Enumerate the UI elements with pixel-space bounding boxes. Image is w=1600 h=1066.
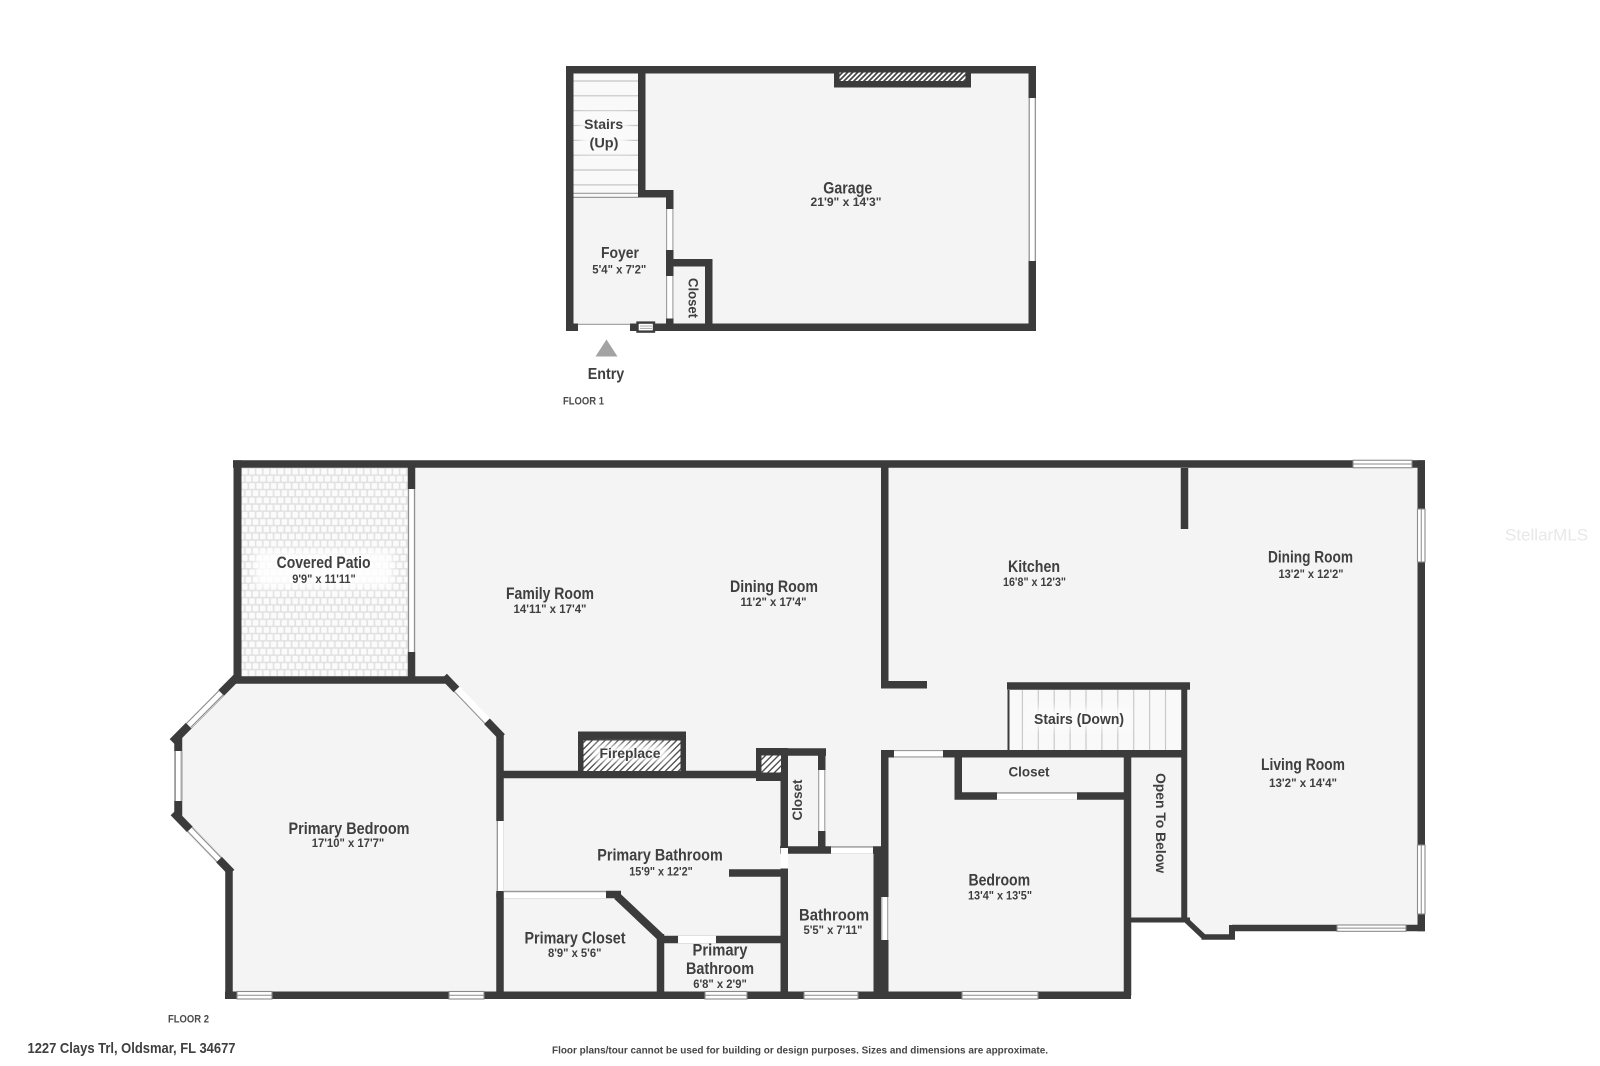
svg-text:Foyer: Foyer	[601, 245, 639, 262]
svg-text:Stairs: Stairs	[584, 117, 623, 132]
svg-text:14'11" x 17'4": 14'11" x 17'4"	[514, 602, 587, 616]
svg-text:Kitchen: Kitchen	[1008, 558, 1060, 576]
svg-text:Stairs (Down): Stairs (Down)	[1034, 712, 1124, 728]
svg-text:FLOOR 2: FLOOR 2	[168, 1014, 209, 1026]
svg-text:Entry: Entry	[588, 366, 625, 383]
svg-text:Family Room: Family Room	[506, 585, 594, 603]
svg-text:11'2" x 17'4": 11'2" x 17'4"	[741, 595, 807, 609]
svg-text:StellarMLS: StellarMLS	[1505, 526, 1588, 545]
svg-text:Bathroom: Bathroom	[799, 906, 869, 924]
svg-text:5'5" x 7'11": 5'5" x 7'11"	[804, 923, 863, 937]
svg-text:8'9" x 5'6": 8'9" x 5'6"	[548, 946, 602, 960]
svg-text:FLOOR 1: FLOOR 1	[563, 396, 604, 408]
svg-text:15'9" x 12'2": 15'9" x 12'2"	[629, 865, 693, 879]
svg-text:Closet: Closet	[789, 779, 805, 820]
svg-text:Covered Patio: Covered Patio	[277, 554, 371, 572]
svg-text:1227 Clays Trl, Oldsmar, FL 34: 1227 Clays Trl, Oldsmar, FL 34677	[28, 1040, 236, 1057]
svg-text:Bedroom: Bedroom	[968, 872, 1030, 890]
svg-text:Floor plans/tour cannot be use: Floor plans/tour cannot be used for buil…	[552, 1046, 1048, 1057]
svg-text:Primary: Primary	[693, 942, 749, 960]
svg-text:Open To Below: Open To Below	[1153, 773, 1169, 873]
svg-text:Dining Room: Dining Room	[1268, 549, 1353, 567]
svg-text:Primary Bathroom: Primary Bathroom	[597, 847, 723, 865]
svg-text:Fireplace: Fireplace	[600, 745, 661, 761]
svg-text:6'8" x 2'9": 6'8" x 2'9"	[693, 977, 747, 991]
svg-text:5'4" x 7'2": 5'4" x 7'2"	[592, 263, 646, 277]
svg-text:13'2" x 12'2": 13'2" x 12'2"	[1279, 567, 1344, 581]
svg-text:Dining Room: Dining Room	[730, 578, 818, 596]
svg-text:(Up): (Up)	[590, 136, 619, 151]
svg-text:9'9" x 11'11": 9'9" x 11'11"	[292, 572, 356, 586]
svg-text:Living Room: Living Room	[1261, 756, 1345, 774]
svg-text:Bathroom: Bathroom	[686, 960, 754, 978]
svg-text:Primary Closet: Primary Closet	[525, 930, 626, 948]
svg-text:Closet: Closet	[686, 278, 701, 318]
svg-text:16'8" x 12'3": 16'8" x 12'3"	[1003, 575, 1066, 589]
svg-text:13'4" x 13'5": 13'4" x 13'5"	[968, 889, 1032, 903]
svg-text:17'10" x 17'7": 17'10" x 17'7"	[312, 836, 385, 850]
svg-text:21'9" x 14'3": 21'9" x 14'3"	[811, 195, 882, 209]
svg-text:Closet: Closet	[1009, 764, 1050, 780]
svg-text:13'2" x 14'4": 13'2" x 14'4"	[1269, 776, 1337, 790]
